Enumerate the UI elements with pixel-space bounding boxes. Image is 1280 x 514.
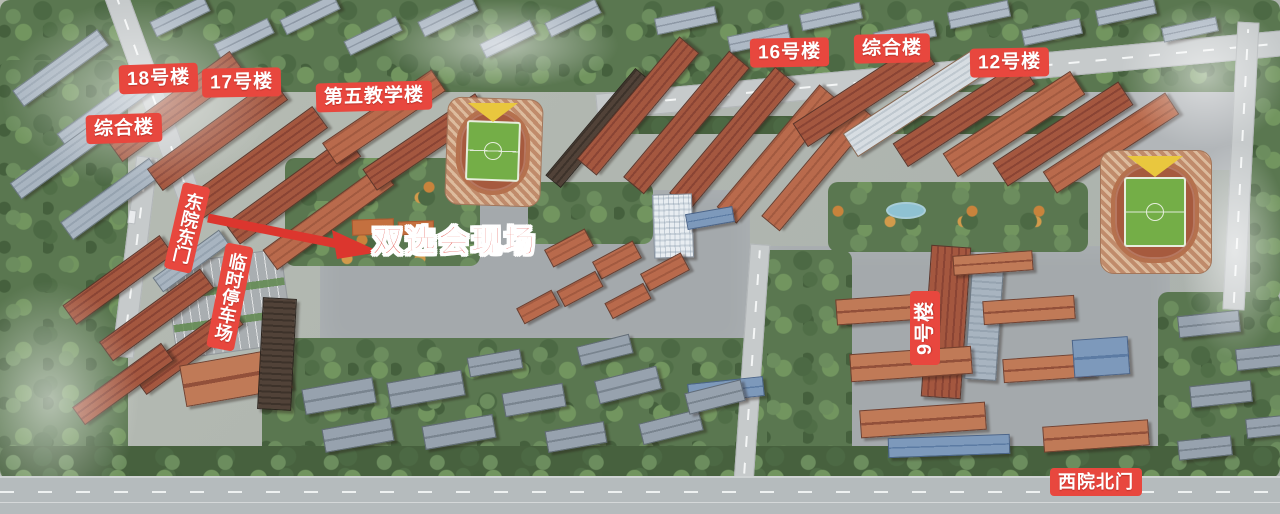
label-building-17: 17号楼 [202,67,282,97]
building-roof [1072,336,1131,378]
road-lane-marking [0,502,1280,503]
label-building-12: 12号楼 [970,47,1050,77]
label-building-18: 18号楼 [119,63,199,95]
tree-area [760,250,852,472]
soccer-field [1124,177,1186,247]
label-teaching-5: 第五教学楼 [316,80,433,112]
campus-aerial-map: 18号楼 17号楼 综合楼 第五教学楼 16号楼 综合楼 12号楼 西院北门 东… [0,0,1280,514]
tree-area [828,182,1088,252]
building-roof [888,434,1011,458]
haze-overlay [1120,0,1280,150]
label-complex-right: 综合楼 [854,33,931,63]
building-roof [257,297,297,411]
label-complex-left: 综合楼 [86,113,163,145]
label-event-site: 双选会现场 [372,226,537,257]
soccer-field [465,120,521,182]
label-building-9: 9号楼 [910,291,940,365]
haze-overlay [380,0,620,90]
pond [886,202,926,219]
tree-area [528,182,653,244]
label-west-north-gate: 西院北门 [1050,468,1142,496]
direction-arrow-icon [186,200,398,262]
vehicle [127,210,137,225]
label-building-16: 16号楼 [750,37,830,67]
